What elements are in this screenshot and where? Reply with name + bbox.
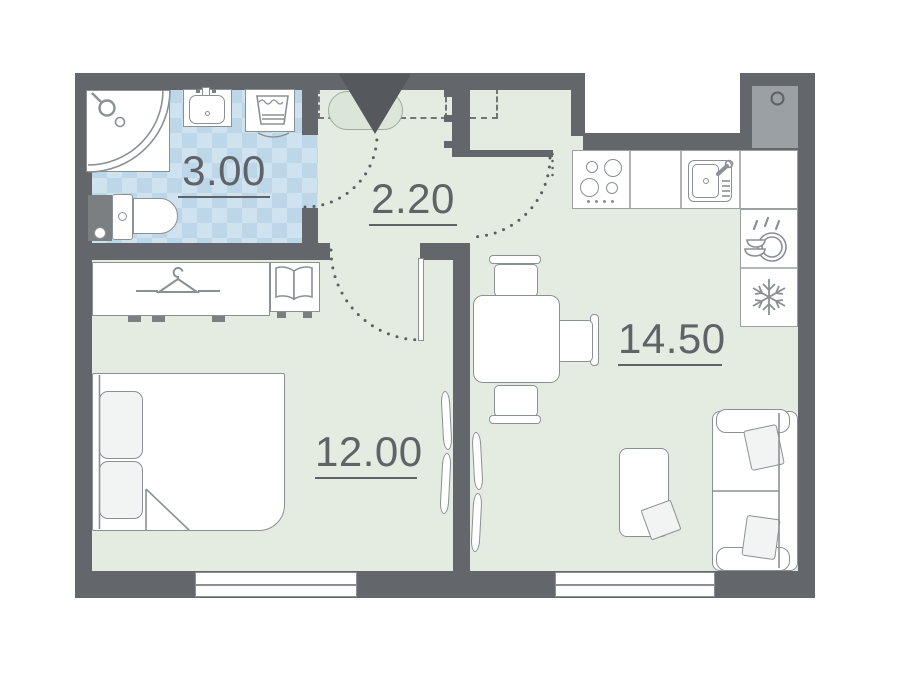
wall-hall-living-vertical [452,88,470,157]
toilet-floor-drain [94,227,106,239]
chair-top-seat [494,264,538,297]
chair-bottom-seat [494,385,538,417]
wall-hall-living-horizontal [470,150,553,157]
stove-burner-large-2 [580,178,599,197]
wall-clip-2 [444,115,453,122]
wall-bathroom-right-upper [302,73,318,135]
wall-clip-1 [444,90,453,97]
stove-knob-4 [611,200,614,203]
chair-right-seat [556,320,593,362]
stove-knob-1 [587,200,590,203]
wardrobe [92,262,270,316]
shower-cabin [86,90,170,172]
bed-pillow-top [99,391,143,459]
stove-burner-small-1 [586,161,598,173]
chair-top-backrest [489,255,541,264]
nightstand [270,262,320,312]
stove-burner-large-1 [604,159,622,177]
wall-bathroom-right-lower [302,208,318,243]
wall-recess-vertical [571,73,585,136]
washbasin-bowl [189,95,225,124]
living-window [555,572,715,597]
duct-dashed-outline [470,88,498,119]
washing-machine [245,89,295,132]
sofa-pillow-bottom [741,515,780,560]
wall-clip-3 [444,141,453,148]
room-area-label-living: 14.50 [618,318,722,366]
window-frame-line [196,584,356,586]
wardrobe-foot-2 [152,316,165,322]
wall-right [798,73,815,598]
wall-bathroom-bedroom [75,243,330,260]
washbasin-drain [205,111,210,116]
nightstand-foot-2 [303,312,312,318]
floor-plan: 3.00 2.20 12.00 14.50 [0,0,900,681]
room-area-label-bedroom: 12.00 [315,431,417,479]
stove-knob-2 [595,200,598,203]
ghost-closet-oval [328,91,403,130]
nightstand-foot-1 [277,312,286,318]
bedroom-door-leaf [418,258,424,341]
toilet-button [118,212,127,221]
kitchen-sink-drain [703,178,709,184]
bed-pillow-bottom [99,461,143,519]
room-area-label-hallway: 2.20 [369,178,457,226]
toilet-bowl [133,198,178,234]
wardrobe-foot-1 [128,316,141,322]
wardrobe-foot-3 [212,316,225,322]
washbasin-tap-right [212,89,216,93]
chair-bottom-backrest [489,415,541,424]
dining-table [473,295,560,383]
wall-top [75,73,585,90]
ventilation-shaft [752,86,798,148]
stove-knob-3 [603,200,606,203]
room-area-label-bathroom: 3.00 [178,150,270,198]
washbasin-tap-left [196,89,200,93]
stove-burner-small-2 [606,182,618,194]
bedroom-window [195,572,357,597]
kitchen-counter-column [740,209,798,327]
wall-bedroom-living-divider [453,243,470,571]
washbasin-faucet [202,87,210,96]
wall-recess-horizontal [583,133,740,150]
window-frame-line [556,584,714,586]
building-recess [585,73,740,133]
